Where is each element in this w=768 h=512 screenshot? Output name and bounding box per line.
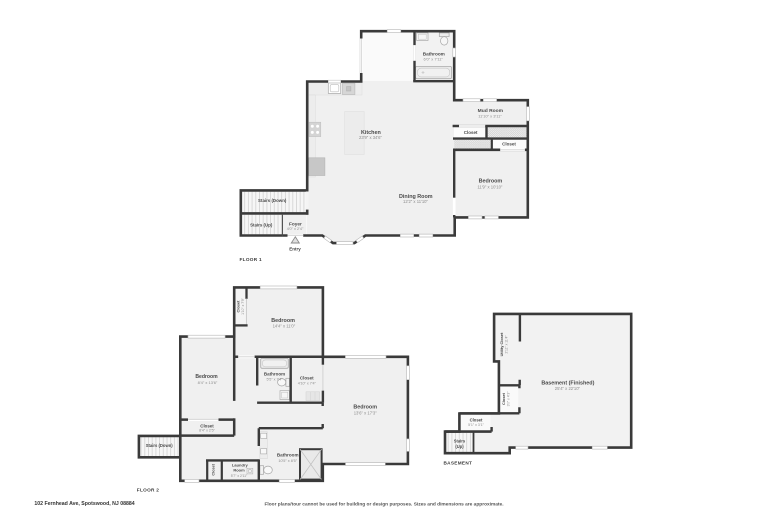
svg-text:6'0" x 7'11": 6'0" x 7'11" bbox=[423, 57, 443, 62]
svg-text:4'0" x 2'4": 4'0" x 2'4" bbox=[287, 227, 304, 231]
svg-text:12'2" x 11'10": 12'2" x 11'10" bbox=[403, 199, 428, 204]
svg-text:2'11" x 11'4": 2'11" x 11'4" bbox=[505, 335, 509, 354]
svg-text:3'0" x 4'3": 3'0" x 4'3" bbox=[506, 391, 510, 407]
svg-text:Closet: Closet bbox=[236, 300, 241, 313]
svg-text:14'4" x 11'0": 14'4" x 11'0" bbox=[273, 323, 296, 328]
svg-text:Utility Closet: Utility Closet bbox=[499, 332, 504, 356]
svg-text:23'9" x 34'6": 23'9" x 34'6" bbox=[359, 135, 382, 140]
svg-text:25'4" x 22'10": 25'4" x 22'10" bbox=[555, 386, 581, 391]
svg-text:(Up): (Up) bbox=[455, 444, 464, 449]
svg-text:Bathroom: Bathroom bbox=[264, 371, 285, 376]
svg-text:5'1" x 3'1": 5'1" x 3'1" bbox=[468, 423, 484, 427]
svg-text:BASEMENT: BASEMENT bbox=[444, 461, 473, 466]
svg-text:10'5" x 8'5": 10'5" x 8'5" bbox=[278, 459, 297, 463]
svg-text:Closet: Closet bbox=[501, 392, 506, 405]
svg-text:Closet: Closet bbox=[502, 142, 516, 147]
svg-text:1'10" x 7'9": 1'10" x 7'9" bbox=[241, 297, 245, 315]
svg-text:8'4" x 2'5": 8'4" x 2'5" bbox=[199, 429, 215, 433]
svg-text:Stairs (Up): Stairs (Up) bbox=[250, 223, 273, 228]
svg-text:Bathroom: Bathroom bbox=[277, 452, 299, 457]
svg-text:11'10" x 3'11": 11'10" x 3'11" bbox=[478, 113, 502, 118]
svg-text:Stairs: Stairs bbox=[454, 438, 466, 443]
svg-text:5'5" x 7'4": 5'5" x 7'4" bbox=[266, 377, 283, 381]
svg-text:Stairs (Down): Stairs (Down) bbox=[146, 443, 174, 448]
svg-text:Entry: Entry bbox=[289, 246, 301, 251]
svg-text:Floor plans/tour cannot be use: Floor plans/tour cannot be used for buil… bbox=[264, 501, 503, 507]
svg-text:5'7" x 2'11": 5'7" x 2'11" bbox=[231, 474, 248, 478]
svg-text:Stairs (Down): Stairs (Down) bbox=[258, 198, 287, 203]
svg-text:Room: Room bbox=[233, 468, 245, 473]
svg-text:FLOOR 2: FLOOR 2 bbox=[137, 488, 160, 493]
svg-text:13'6" x 17'3": 13'6" x 17'3" bbox=[354, 410, 377, 415]
svg-text:Closet: Closet bbox=[300, 376, 314, 381]
svg-text:Closet: Closet bbox=[211, 463, 215, 475]
svg-text:102 Fernhead Ave, Spotswood, N: 102 Fernhead Ave, Spotswood, NJ 08884 bbox=[34, 501, 134, 507]
svg-text:Closet: Closet bbox=[200, 423, 214, 428]
svg-text:4'10" x 7'4": 4'10" x 7'4" bbox=[298, 382, 317, 386]
svg-text:Foyer: Foyer bbox=[289, 222, 302, 227]
svg-text:Closet: Closet bbox=[464, 130, 478, 135]
svg-text:FLOOR 1: FLOOR 1 bbox=[240, 257, 263, 262]
svg-text:8'4" x 13'6": 8'4" x 13'6" bbox=[198, 380, 218, 385]
svg-text:Closet: Closet bbox=[470, 417, 483, 422]
svg-text:11'9" x 10'10": 11'9" x 10'10" bbox=[477, 184, 502, 189]
